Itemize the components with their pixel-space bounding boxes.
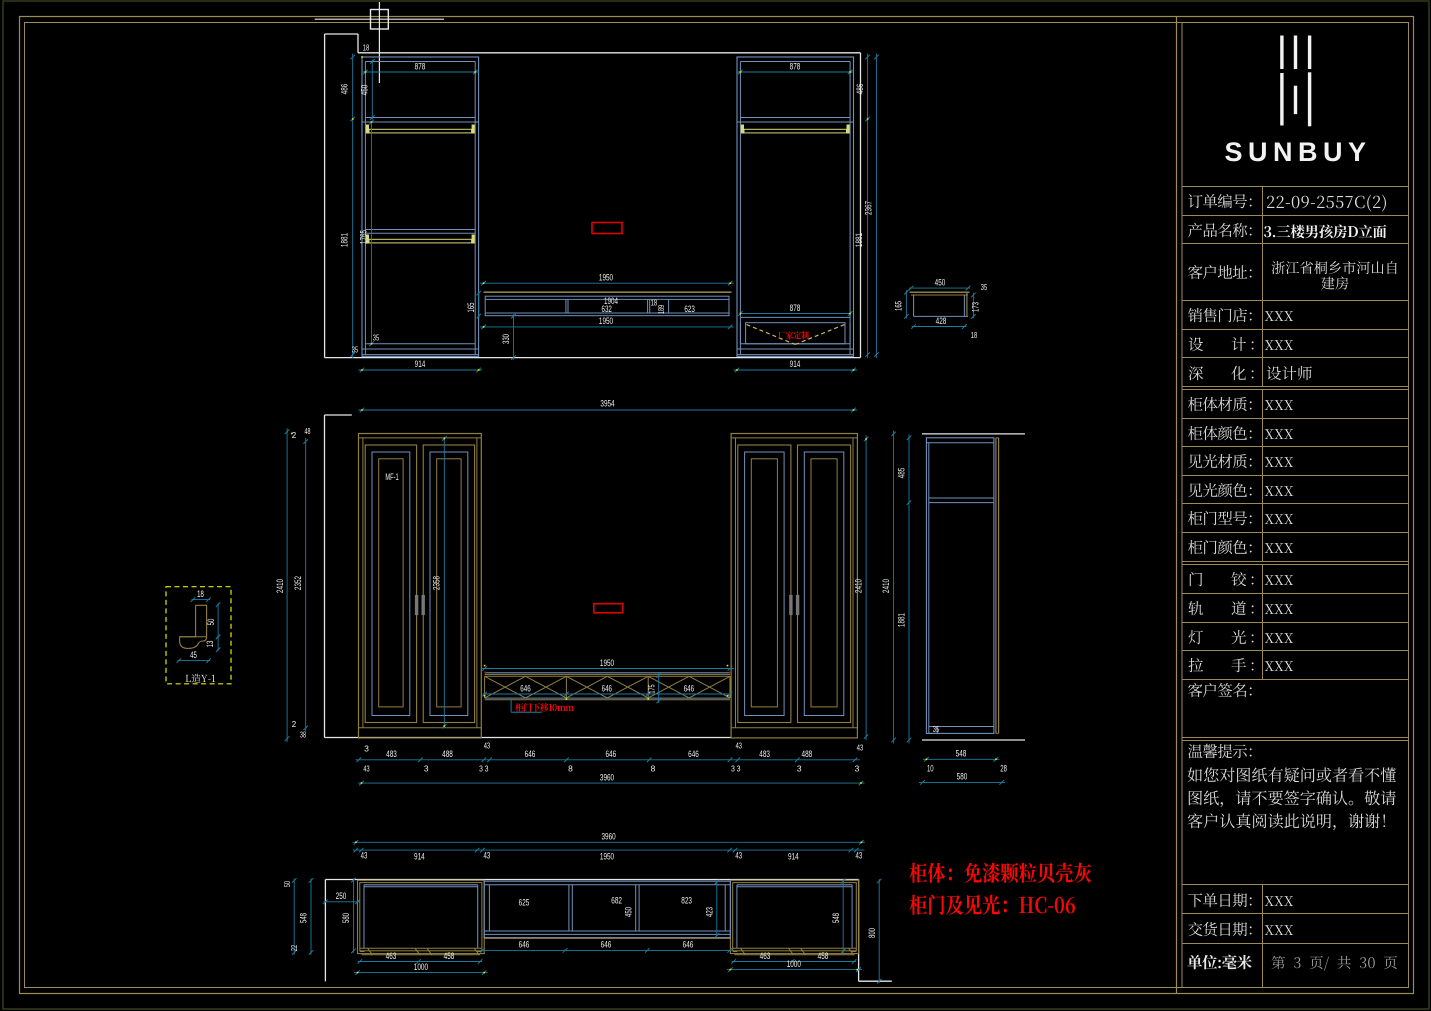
svg-text:165: 165 xyxy=(466,303,476,313)
svg-text:2410: 2410 xyxy=(275,579,286,593)
svg-text:1950: 1950 xyxy=(599,273,613,284)
svg-text:458: 458 xyxy=(444,951,455,962)
svg-text:18: 18 xyxy=(197,589,204,599)
svg-text:2358: 2358 xyxy=(432,576,443,590)
svg-text:450: 450 xyxy=(935,278,946,289)
svg-text:8: 8 xyxy=(651,764,656,774)
svg-text:625: 625 xyxy=(519,898,530,909)
svg-text:3: 3 xyxy=(855,764,860,774)
svg-text:914: 914 xyxy=(788,851,799,862)
svg-text:450: 450 xyxy=(360,85,371,96)
svg-text:646: 646 xyxy=(683,940,694,951)
svg-text:483: 483 xyxy=(759,749,770,760)
svg-text:1881: 1881 xyxy=(340,233,351,247)
svg-text:682: 682 xyxy=(611,896,622,907)
svg-text:43: 43 xyxy=(484,850,491,860)
svg-text:2: 2 xyxy=(292,431,297,440)
svg-text:43: 43 xyxy=(735,850,742,860)
svg-text:485: 485 xyxy=(897,468,908,479)
svg-text:878: 878 xyxy=(790,62,801,73)
svg-text:1000: 1000 xyxy=(414,962,428,973)
svg-text:1881: 1881 xyxy=(854,233,865,247)
svg-text:548: 548 xyxy=(299,913,309,923)
svg-text:580: 580 xyxy=(341,913,351,923)
svg-text:3 3: 3 3 xyxy=(731,764,741,774)
svg-text:3: 3 xyxy=(364,744,369,754)
svg-text:35: 35 xyxy=(981,282,988,292)
svg-text:486: 486 xyxy=(340,84,351,95)
svg-text:35: 35 xyxy=(352,345,359,355)
svg-text:330: 330 xyxy=(501,334,511,344)
svg-text:463: 463 xyxy=(760,951,771,962)
svg-text:50: 50 xyxy=(282,881,292,887)
svg-text:173: 173 xyxy=(971,302,981,312)
svg-text:623: 623 xyxy=(684,303,694,314)
svg-text:43: 43 xyxy=(857,743,864,753)
svg-text:45: 45 xyxy=(190,650,197,660)
svg-text:MF-1: MF-1 xyxy=(385,472,398,482)
svg-text:488: 488 xyxy=(442,749,453,760)
svg-text:800: 800 xyxy=(867,928,877,938)
svg-text:3954: 3954 xyxy=(600,399,615,410)
svg-text:1950: 1950 xyxy=(600,851,614,862)
svg-text:10: 10 xyxy=(927,764,934,774)
svg-text:632: 632 xyxy=(602,303,612,314)
svg-text:914: 914 xyxy=(414,851,425,862)
svg-text:1881: 1881 xyxy=(897,613,908,627)
svg-text:13: 13 xyxy=(205,641,215,648)
svg-text:450: 450 xyxy=(624,907,634,917)
svg-text:646: 646 xyxy=(688,749,699,760)
svg-text:2410: 2410 xyxy=(854,579,865,593)
svg-text:8: 8 xyxy=(568,764,573,774)
svg-text:646: 646 xyxy=(605,749,616,760)
svg-text:43: 43 xyxy=(361,850,368,860)
svg-text:1950: 1950 xyxy=(599,316,613,327)
svg-text:2367: 2367 xyxy=(864,201,875,215)
svg-text:646: 646 xyxy=(519,940,530,951)
svg-text:2: 2 xyxy=(292,720,297,729)
svg-text:2410: 2410 xyxy=(881,579,892,593)
svg-text:914: 914 xyxy=(415,359,426,370)
svg-text:50: 50 xyxy=(206,619,216,626)
svg-text:43: 43 xyxy=(363,764,369,774)
svg-text:463: 463 xyxy=(386,951,397,962)
svg-text:1950: 1950 xyxy=(600,658,614,669)
svg-text:48: 48 xyxy=(305,427,311,436)
svg-text:3960: 3960 xyxy=(602,831,616,842)
svg-text:28: 28 xyxy=(1000,764,1007,774)
svg-text:3: 3 xyxy=(424,764,429,774)
svg-text:914: 914 xyxy=(790,359,801,370)
svg-text:22: 22 xyxy=(289,945,299,951)
svg-text:878: 878 xyxy=(790,303,801,314)
svg-text:1000: 1000 xyxy=(787,959,801,970)
svg-text:2352: 2352 xyxy=(293,576,304,590)
svg-text:43: 43 xyxy=(856,850,863,860)
svg-text:580: 580 xyxy=(957,772,968,783)
svg-text:250: 250 xyxy=(336,891,347,902)
svg-text:3 3: 3 3 xyxy=(479,764,489,774)
svg-text:175: 175 xyxy=(646,684,656,694)
svg-text:SUNBUY: SUNBUY xyxy=(1224,137,1371,167)
svg-text:458: 458 xyxy=(818,951,829,962)
svg-text:35: 35 xyxy=(373,333,380,343)
svg-text:428: 428 xyxy=(936,316,947,327)
svg-text:18: 18 xyxy=(363,43,370,53)
svg-text:3: 3 xyxy=(797,764,802,774)
svg-text:3960: 3960 xyxy=(600,772,614,783)
svg-text:646: 646 xyxy=(520,682,530,693)
svg-text:18: 18 xyxy=(971,330,978,340)
svg-text:646: 646 xyxy=(601,940,612,951)
svg-text:43: 43 xyxy=(736,741,743,751)
svg-text:423: 423 xyxy=(705,907,715,917)
svg-text:548: 548 xyxy=(956,749,967,760)
svg-text:38: 38 xyxy=(300,731,306,740)
svg-text:878: 878 xyxy=(415,62,426,73)
svg-text:646: 646 xyxy=(525,749,536,760)
svg-text:646: 646 xyxy=(602,682,612,693)
svg-text:165: 165 xyxy=(894,301,904,311)
svg-text:43: 43 xyxy=(484,741,491,751)
svg-text:189: 189 xyxy=(656,305,666,315)
svg-text:1765: 1765 xyxy=(359,230,370,244)
svg-text:823: 823 xyxy=(681,896,692,907)
svg-text:483: 483 xyxy=(386,749,397,760)
svg-text:35: 35 xyxy=(933,724,940,734)
svg-text:488: 488 xyxy=(802,749,813,760)
svg-text:548: 548 xyxy=(831,913,841,923)
svg-text:486: 486 xyxy=(855,84,866,95)
svg-text:646: 646 xyxy=(684,682,694,693)
